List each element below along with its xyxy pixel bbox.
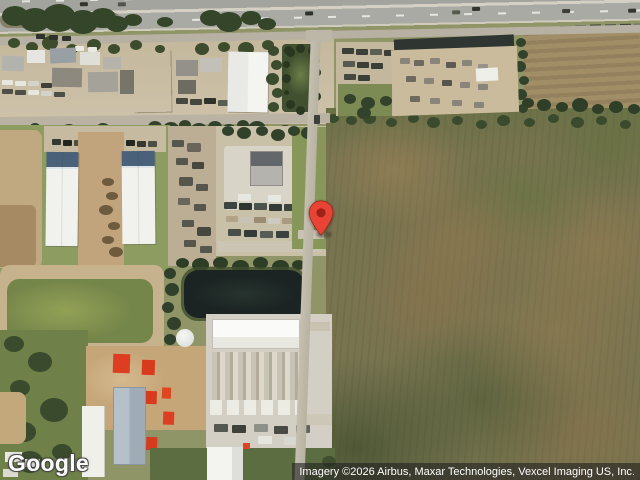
red-containers xyxy=(113,354,131,374)
storage-tank xyxy=(176,329,194,347)
small-warehouse xyxy=(178,80,196,94)
small-warehouse xyxy=(176,60,198,76)
tree-column xyxy=(268,46,279,56)
truck-row xyxy=(224,202,237,209)
ball-field-trees xyxy=(284,46,293,55)
small-warehouse xyxy=(88,72,118,93)
farm-tree-column xyxy=(516,38,526,47)
large-warehouse-roof xyxy=(132,50,171,113)
blue-gray-building xyxy=(113,387,146,465)
satellite-map-canvas[interactable]: Google Imagery ©2026 Airbus, Maxar Techn… xyxy=(0,0,640,480)
dirt-lane xyxy=(78,132,124,268)
lumber-warehouse xyxy=(212,319,300,349)
trailer-rows xyxy=(2,80,13,85)
dirt-patch xyxy=(0,205,36,267)
lane-dashes xyxy=(0,0,640,3)
parked-cars-frontage xyxy=(36,34,45,39)
lumber-strip-row xyxy=(210,400,308,415)
red-container-small xyxy=(243,443,250,449)
roadside-trees xyxy=(8,38,20,48)
small-warehouse xyxy=(52,68,82,88)
car-on-road xyxy=(314,115,320,124)
pond-trees xyxy=(176,258,189,268)
equipment-yard xyxy=(391,46,519,116)
white-building-south xyxy=(207,447,243,480)
parked-cars xyxy=(52,139,61,145)
small-warehouse xyxy=(80,52,100,65)
warehouse-blue-gable xyxy=(122,151,156,244)
material-stacks xyxy=(226,216,238,222)
lumber-stacks xyxy=(212,352,304,400)
truck-row xyxy=(228,229,241,236)
warehouse-blue-gable xyxy=(46,152,79,246)
large-warehouse-roof xyxy=(227,52,268,113)
location-pin[interactable] xyxy=(308,200,334,236)
dark-pond xyxy=(184,270,304,318)
small-warehouse xyxy=(200,58,222,72)
small-warehouse xyxy=(2,56,25,72)
lumber-trucks xyxy=(214,424,228,432)
facility-trees xyxy=(222,126,234,136)
tree-clumps xyxy=(4,336,24,352)
google-logo[interactable]: Google xyxy=(8,450,89,477)
stacked-materials xyxy=(172,140,184,147)
parked-trucks xyxy=(176,98,188,104)
tree-column xyxy=(164,268,176,279)
pin-body xyxy=(309,201,333,235)
scrub-brush xyxy=(102,178,114,186)
farm-field xyxy=(523,25,640,109)
truck-yard-trees xyxy=(344,94,356,104)
road-intersection xyxy=(306,30,332,43)
farm-tree-row-south xyxy=(522,98,534,108)
small-warehouse xyxy=(50,48,77,64)
truck-yard-vehicles xyxy=(342,48,354,54)
facility-building xyxy=(250,151,283,186)
dirt-path xyxy=(0,392,26,444)
yard-equipment xyxy=(400,58,410,64)
pin-hole xyxy=(316,208,325,217)
imagery-attribution: Imagery ©2026 Airbus, Maxar Technologies… xyxy=(292,463,640,480)
storage-yard xyxy=(168,126,216,266)
open-field xyxy=(326,108,640,480)
small-warehouse xyxy=(27,50,45,63)
small-warehouse xyxy=(103,57,121,69)
median-trees xyxy=(2,6,28,26)
white-building xyxy=(476,67,499,81)
highway-vehicles xyxy=(80,2,88,6)
